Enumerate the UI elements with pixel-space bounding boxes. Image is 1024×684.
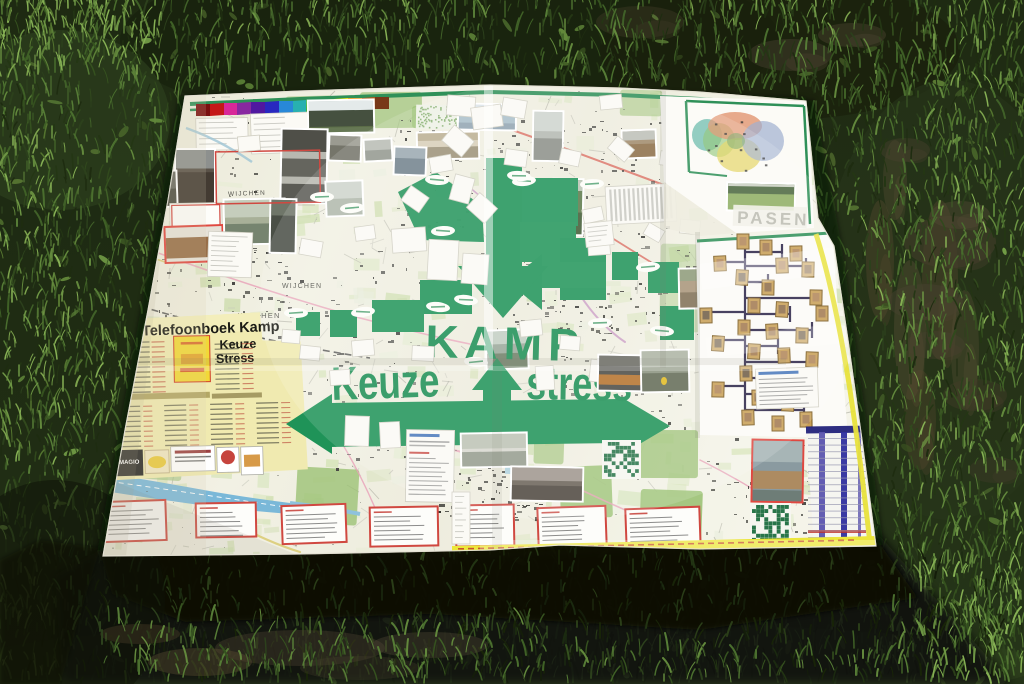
svg-text:WIJCHEN: WIJCHEN (228, 190, 266, 198)
